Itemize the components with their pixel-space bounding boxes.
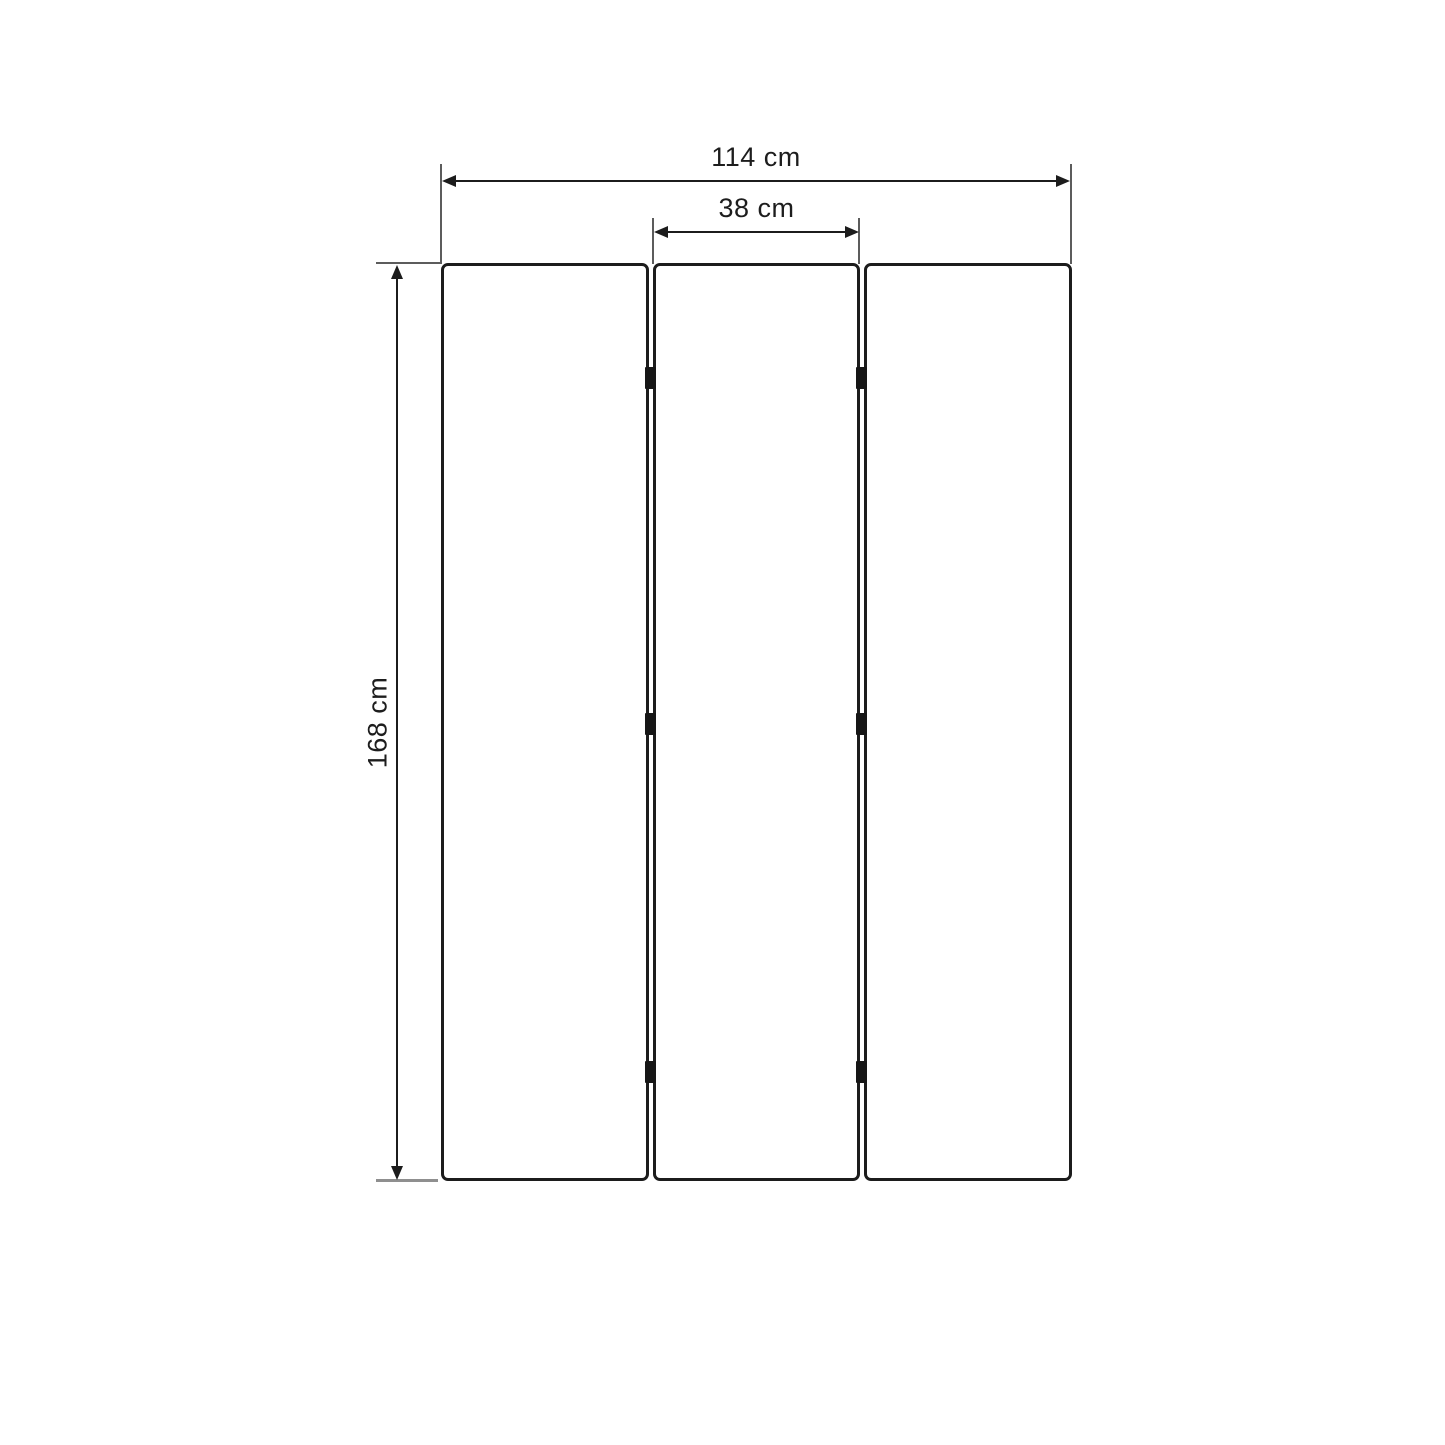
total-width-label: 114 cm xyxy=(441,142,1071,173)
dimension-diagram: 114 cm 38 cm 168 cm xyxy=(0,0,1445,1445)
hinge-left-middle-icon xyxy=(645,713,656,735)
hinge-right-top-icon xyxy=(856,367,867,389)
height-label: 168 cm xyxy=(362,676,393,768)
panel-left xyxy=(441,263,649,1181)
height-label-wrap: 168 cm xyxy=(330,263,426,1181)
hinge-left-bottom-icon xyxy=(645,1061,656,1083)
hinge-right-middle-icon xyxy=(856,713,867,735)
panel-width-label: 38 cm xyxy=(653,193,860,224)
hinge-right-bottom-icon xyxy=(856,1061,867,1083)
hinge-left-top-icon xyxy=(645,367,656,389)
panel-center xyxy=(653,263,860,1181)
panel-right xyxy=(864,263,1072,1181)
